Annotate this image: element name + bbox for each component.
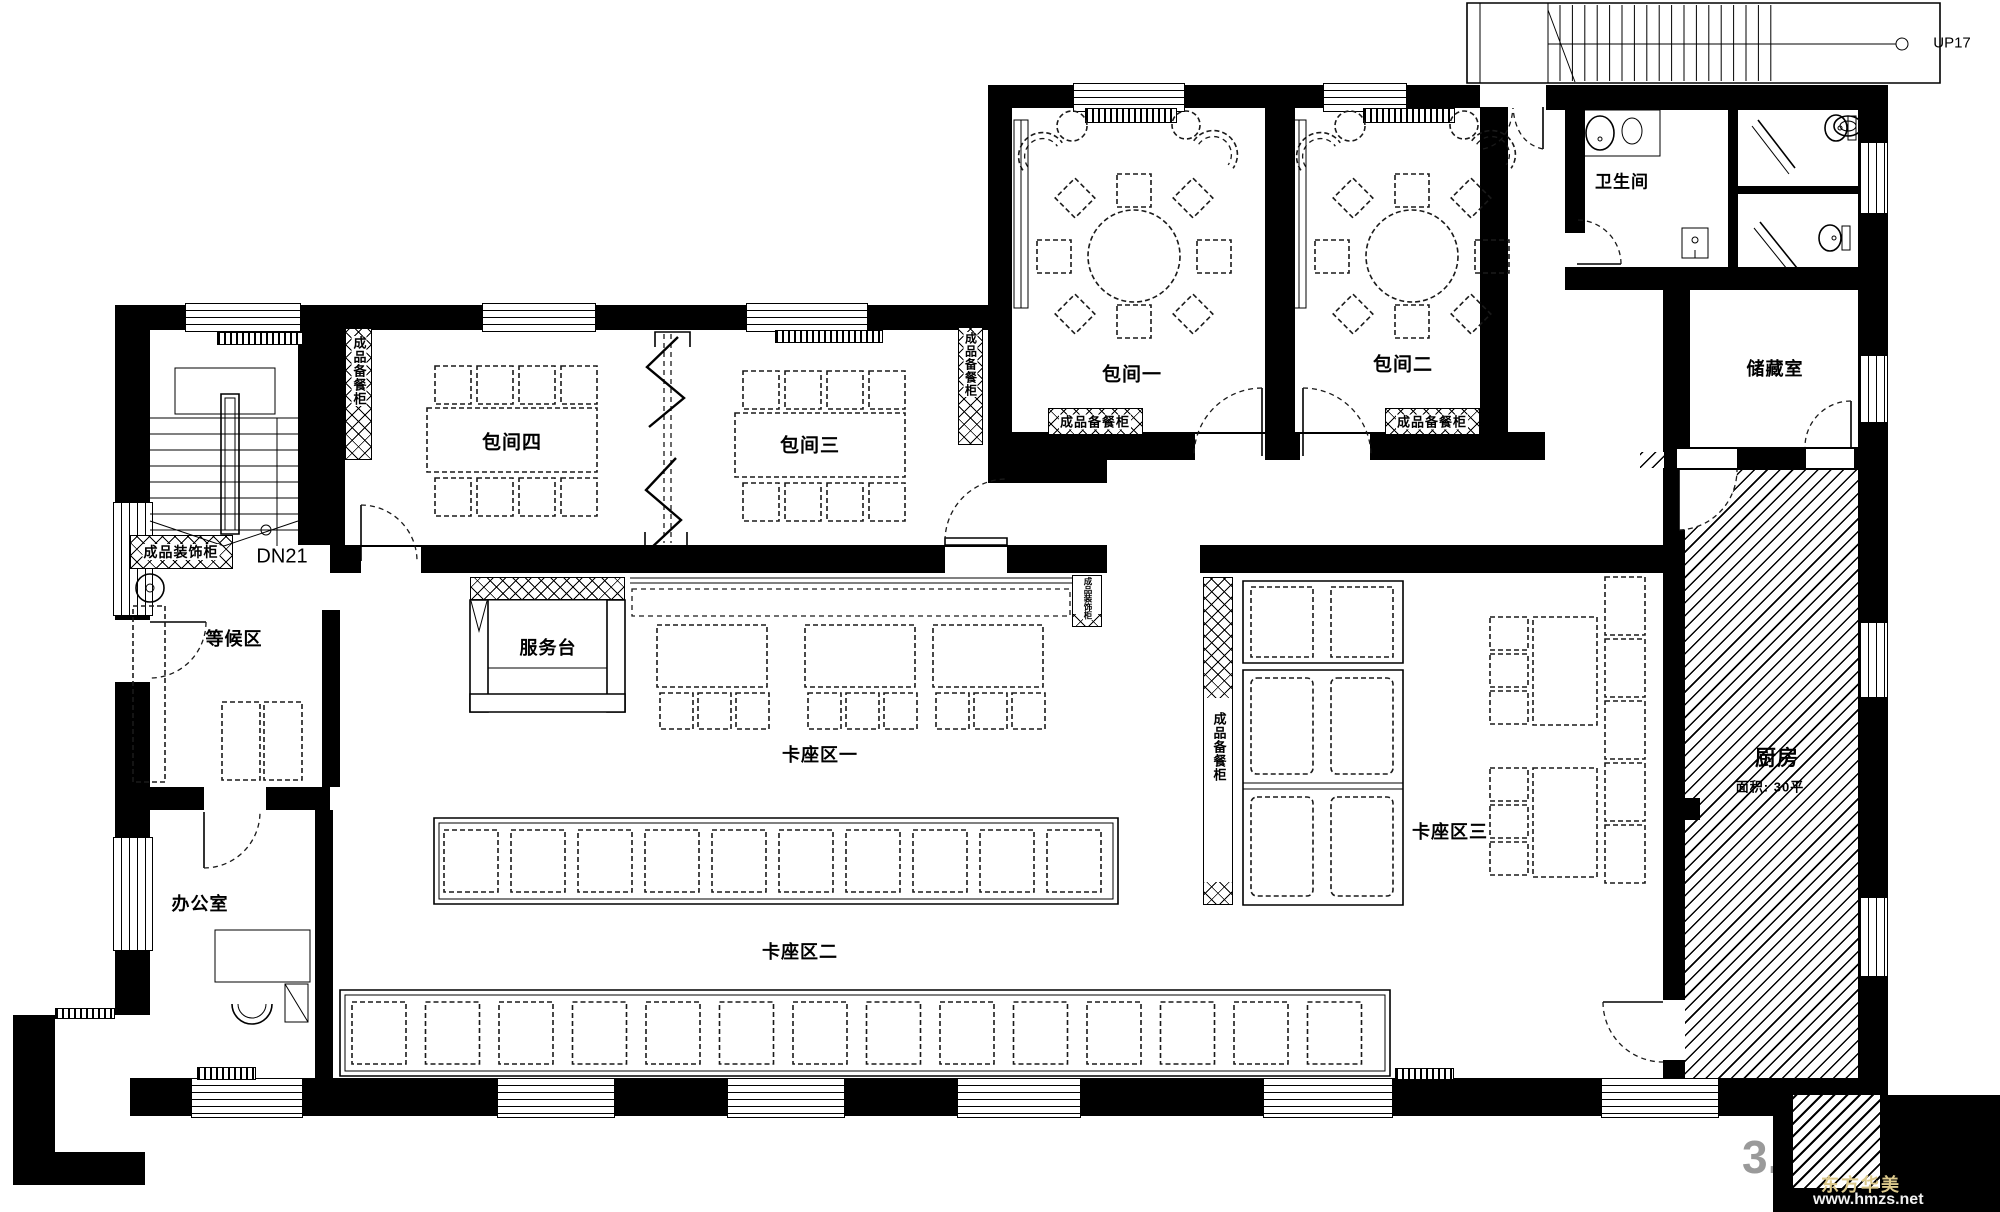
watermark-site: www.hmzs.net [1813, 1191, 1924, 1209]
cabinet-prep-booth3-label: 成品备餐柜 [1210, 712, 1229, 782]
stair-label-up: UP17 [1933, 35, 1971, 52]
room-label-booth-2: 卡座区二 [762, 938, 838, 964]
cabinet-prep-room2-label: 成品备餐柜 [1396, 412, 1468, 431]
stair-label-down: DN21 [256, 546, 307, 569]
cabinet-prep-room1-label: 成品备餐柜 [1059, 412, 1131, 431]
room-label-waiting: 等候区 [206, 625, 263, 651]
stair-down-run [150, 368, 298, 546]
cabinet-decor-banquette-end-label: 成品装饰柜 [1082, 577, 1094, 620]
room-label-private-4: 包间四 [482, 428, 542, 455]
booth-area-2-furniture [340, 818, 1390, 1076]
room-label-booth-3: 卡座区三 [1412, 818, 1488, 844]
room-label-office: 办公室 [172, 890, 229, 916]
room-label-booth-1: 卡座区一 [782, 741, 858, 767]
room-label-private-2: 包间二 [1373, 350, 1433, 377]
cabinet-prep-vertical-2-label: 成品备餐柜 [963, 332, 980, 397]
booth-area-3-furniture [1243, 577, 1645, 905]
plan-linework [0, 0, 2000, 1212]
room-label-service-desk: 服务台 [520, 634, 577, 660]
door-arcs [150, 107, 1851, 1062]
booth-area-1-furniture [630, 578, 1072, 729]
room-label-kitchen: 厨房 [1755, 742, 1799, 772]
floor-plan-canvas: 成品备餐柜 成品备餐柜 成品备餐柜 成品备餐柜 成品装饰柜 成品装饰柜 成品备餐… [0, 0, 2000, 1212]
waiting-area-furniture [133, 574, 302, 782]
watermark-box: 东方华美 www.hmzs.net [1773, 1095, 2000, 1212]
room-label-private-3: 包间三 [780, 431, 840, 458]
folding-partition [645, 332, 690, 549]
room-label-kitchen-area: 面积: 30平 [1736, 777, 1804, 796]
room-label-storage: 储藏室 [1747, 355, 1804, 381]
room-label-bathroom: 卫生间 [1595, 168, 1649, 193]
stair-up-run [1467, 3, 1940, 83]
room-label-private-1: 包间一 [1102, 360, 1162, 387]
office-furniture [215, 930, 310, 1024]
cabinet-decor-stairhall-label: 成品装饰柜 [143, 542, 220, 562]
cabinet-prep-vertical-1-label: 成品备餐柜 [350, 336, 369, 406]
